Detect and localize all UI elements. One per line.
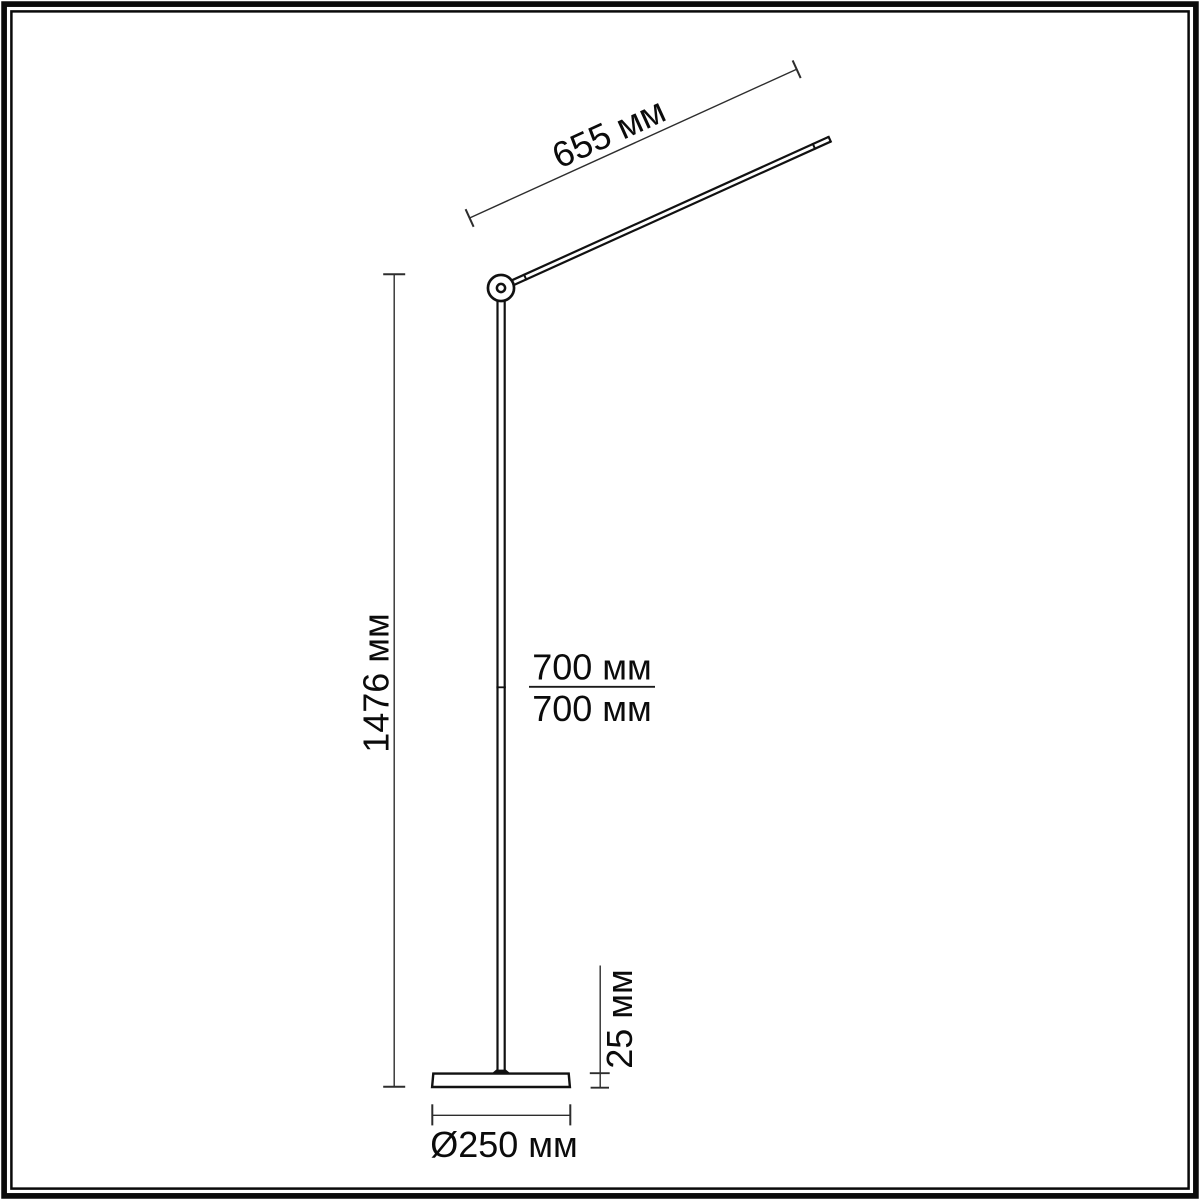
svg-text:1476 мм: 1476 мм xyxy=(356,613,397,753)
svg-text:700 мм: 700 мм xyxy=(532,646,652,687)
svg-text:Ø250 мм: Ø250 мм xyxy=(430,1124,578,1165)
svg-text:700 мм: 700 мм xyxy=(532,688,652,729)
svg-text:25 мм: 25 мм xyxy=(599,969,640,1069)
